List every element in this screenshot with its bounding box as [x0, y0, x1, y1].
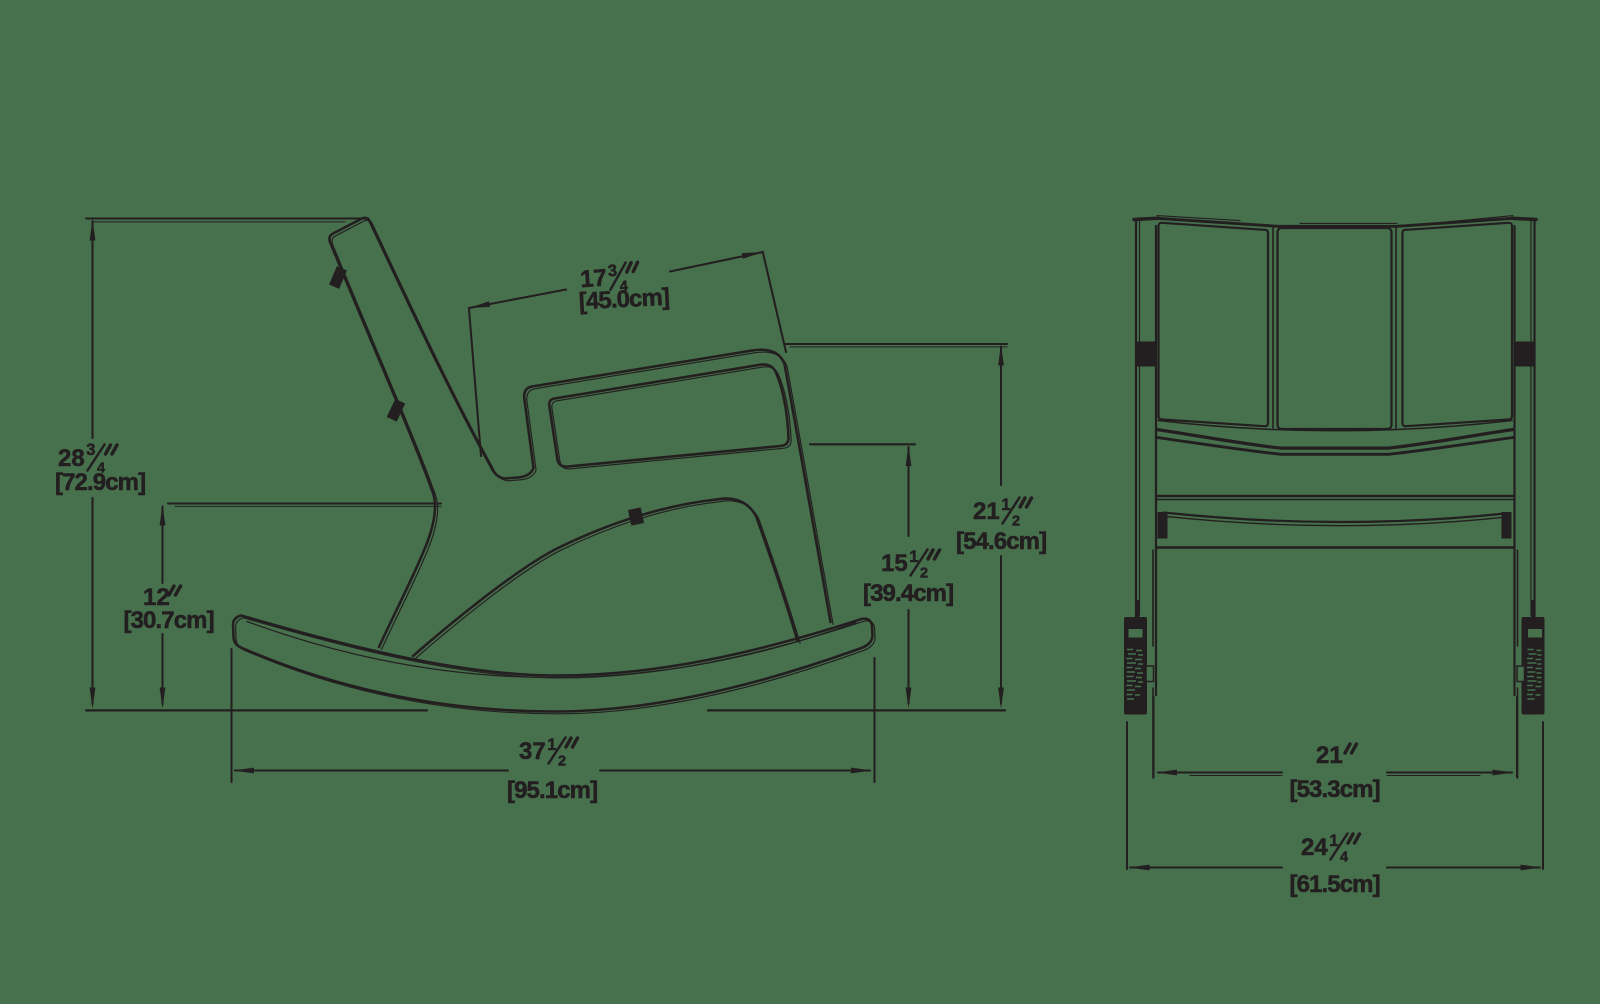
svg-text:2: 2: [558, 754, 566, 770]
svg-text:3: 3: [86, 441, 95, 459]
svg-text:[45.0cm]: [45.0cm]: [578, 284, 669, 316]
svg-text:37: 37: [519, 738, 546, 765]
svg-text:[39.4cm]: [39.4cm]: [863, 580, 953, 607]
svg-text:21: 21: [1316, 742, 1343, 769]
svg-text:[72.9cm]: [72.9cm]: [55, 469, 145, 496]
svg-text:4: 4: [1340, 850, 1348, 866]
svg-text:[95.1cm]: [95.1cm]: [507, 777, 597, 804]
svg-text:[61.5cm]: [61.5cm]: [1290, 871, 1380, 898]
svg-text:[54.6cm]: [54.6cm]: [956, 528, 1046, 555]
svg-text:28: 28: [58, 445, 85, 472]
svg-text:[30.7cm]: [30.7cm]: [124, 607, 214, 634]
svg-text:[53.3cm]: [53.3cm]: [1290, 776, 1380, 803]
svg-text:15: 15: [881, 550, 908, 577]
svg-text:24: 24: [1301, 834, 1328, 861]
svg-text:21: 21: [973, 498, 1000, 525]
